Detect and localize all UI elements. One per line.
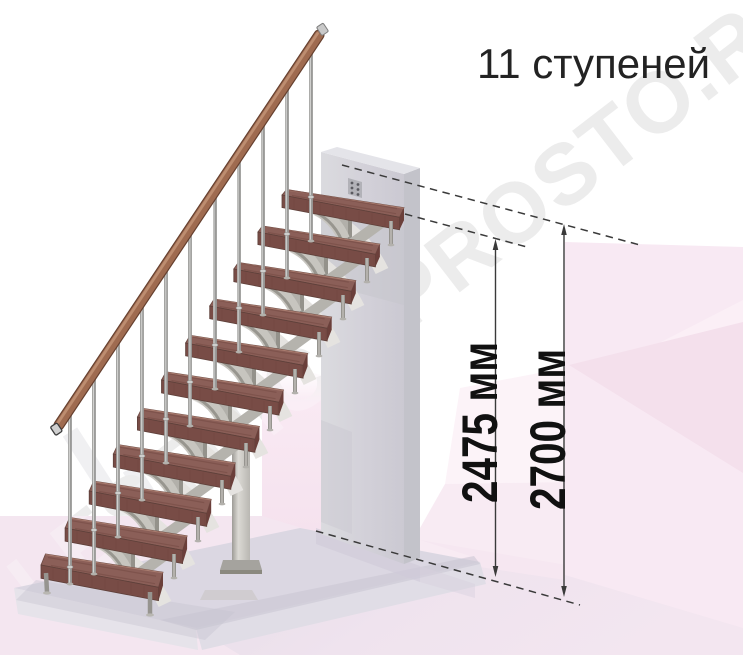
svg-text:11 ступеней: 11 ступеней — [477, 40, 710, 87]
svg-text:2475 мм: 2475 мм — [452, 342, 508, 503]
svg-text:2700 мм: 2700 мм — [520, 349, 576, 510]
